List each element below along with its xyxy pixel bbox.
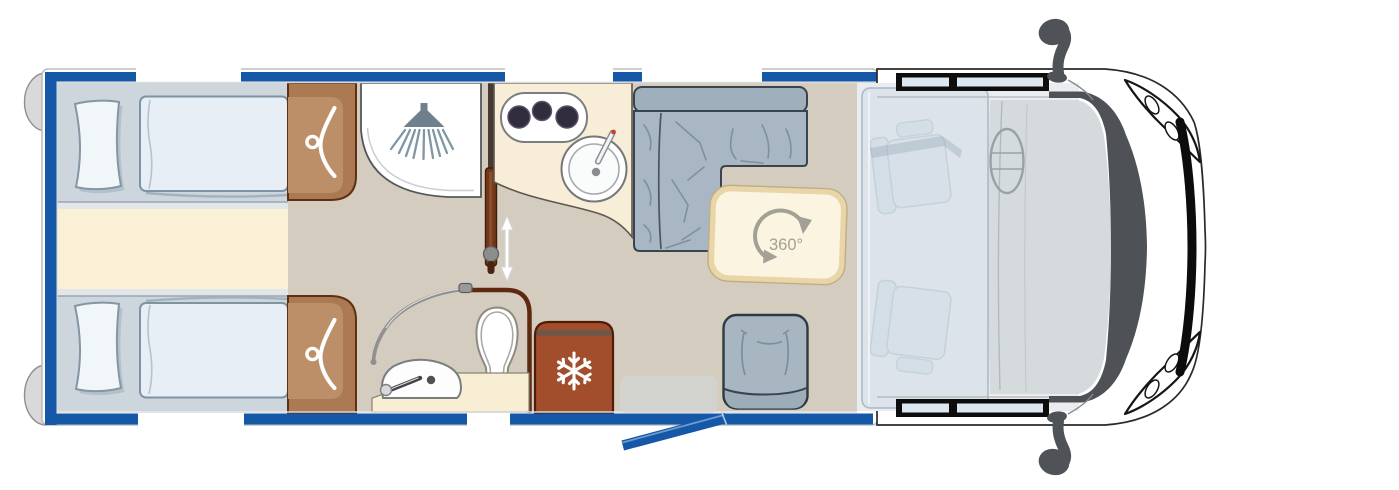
svg-text:360°: 360° [769, 236, 803, 254]
